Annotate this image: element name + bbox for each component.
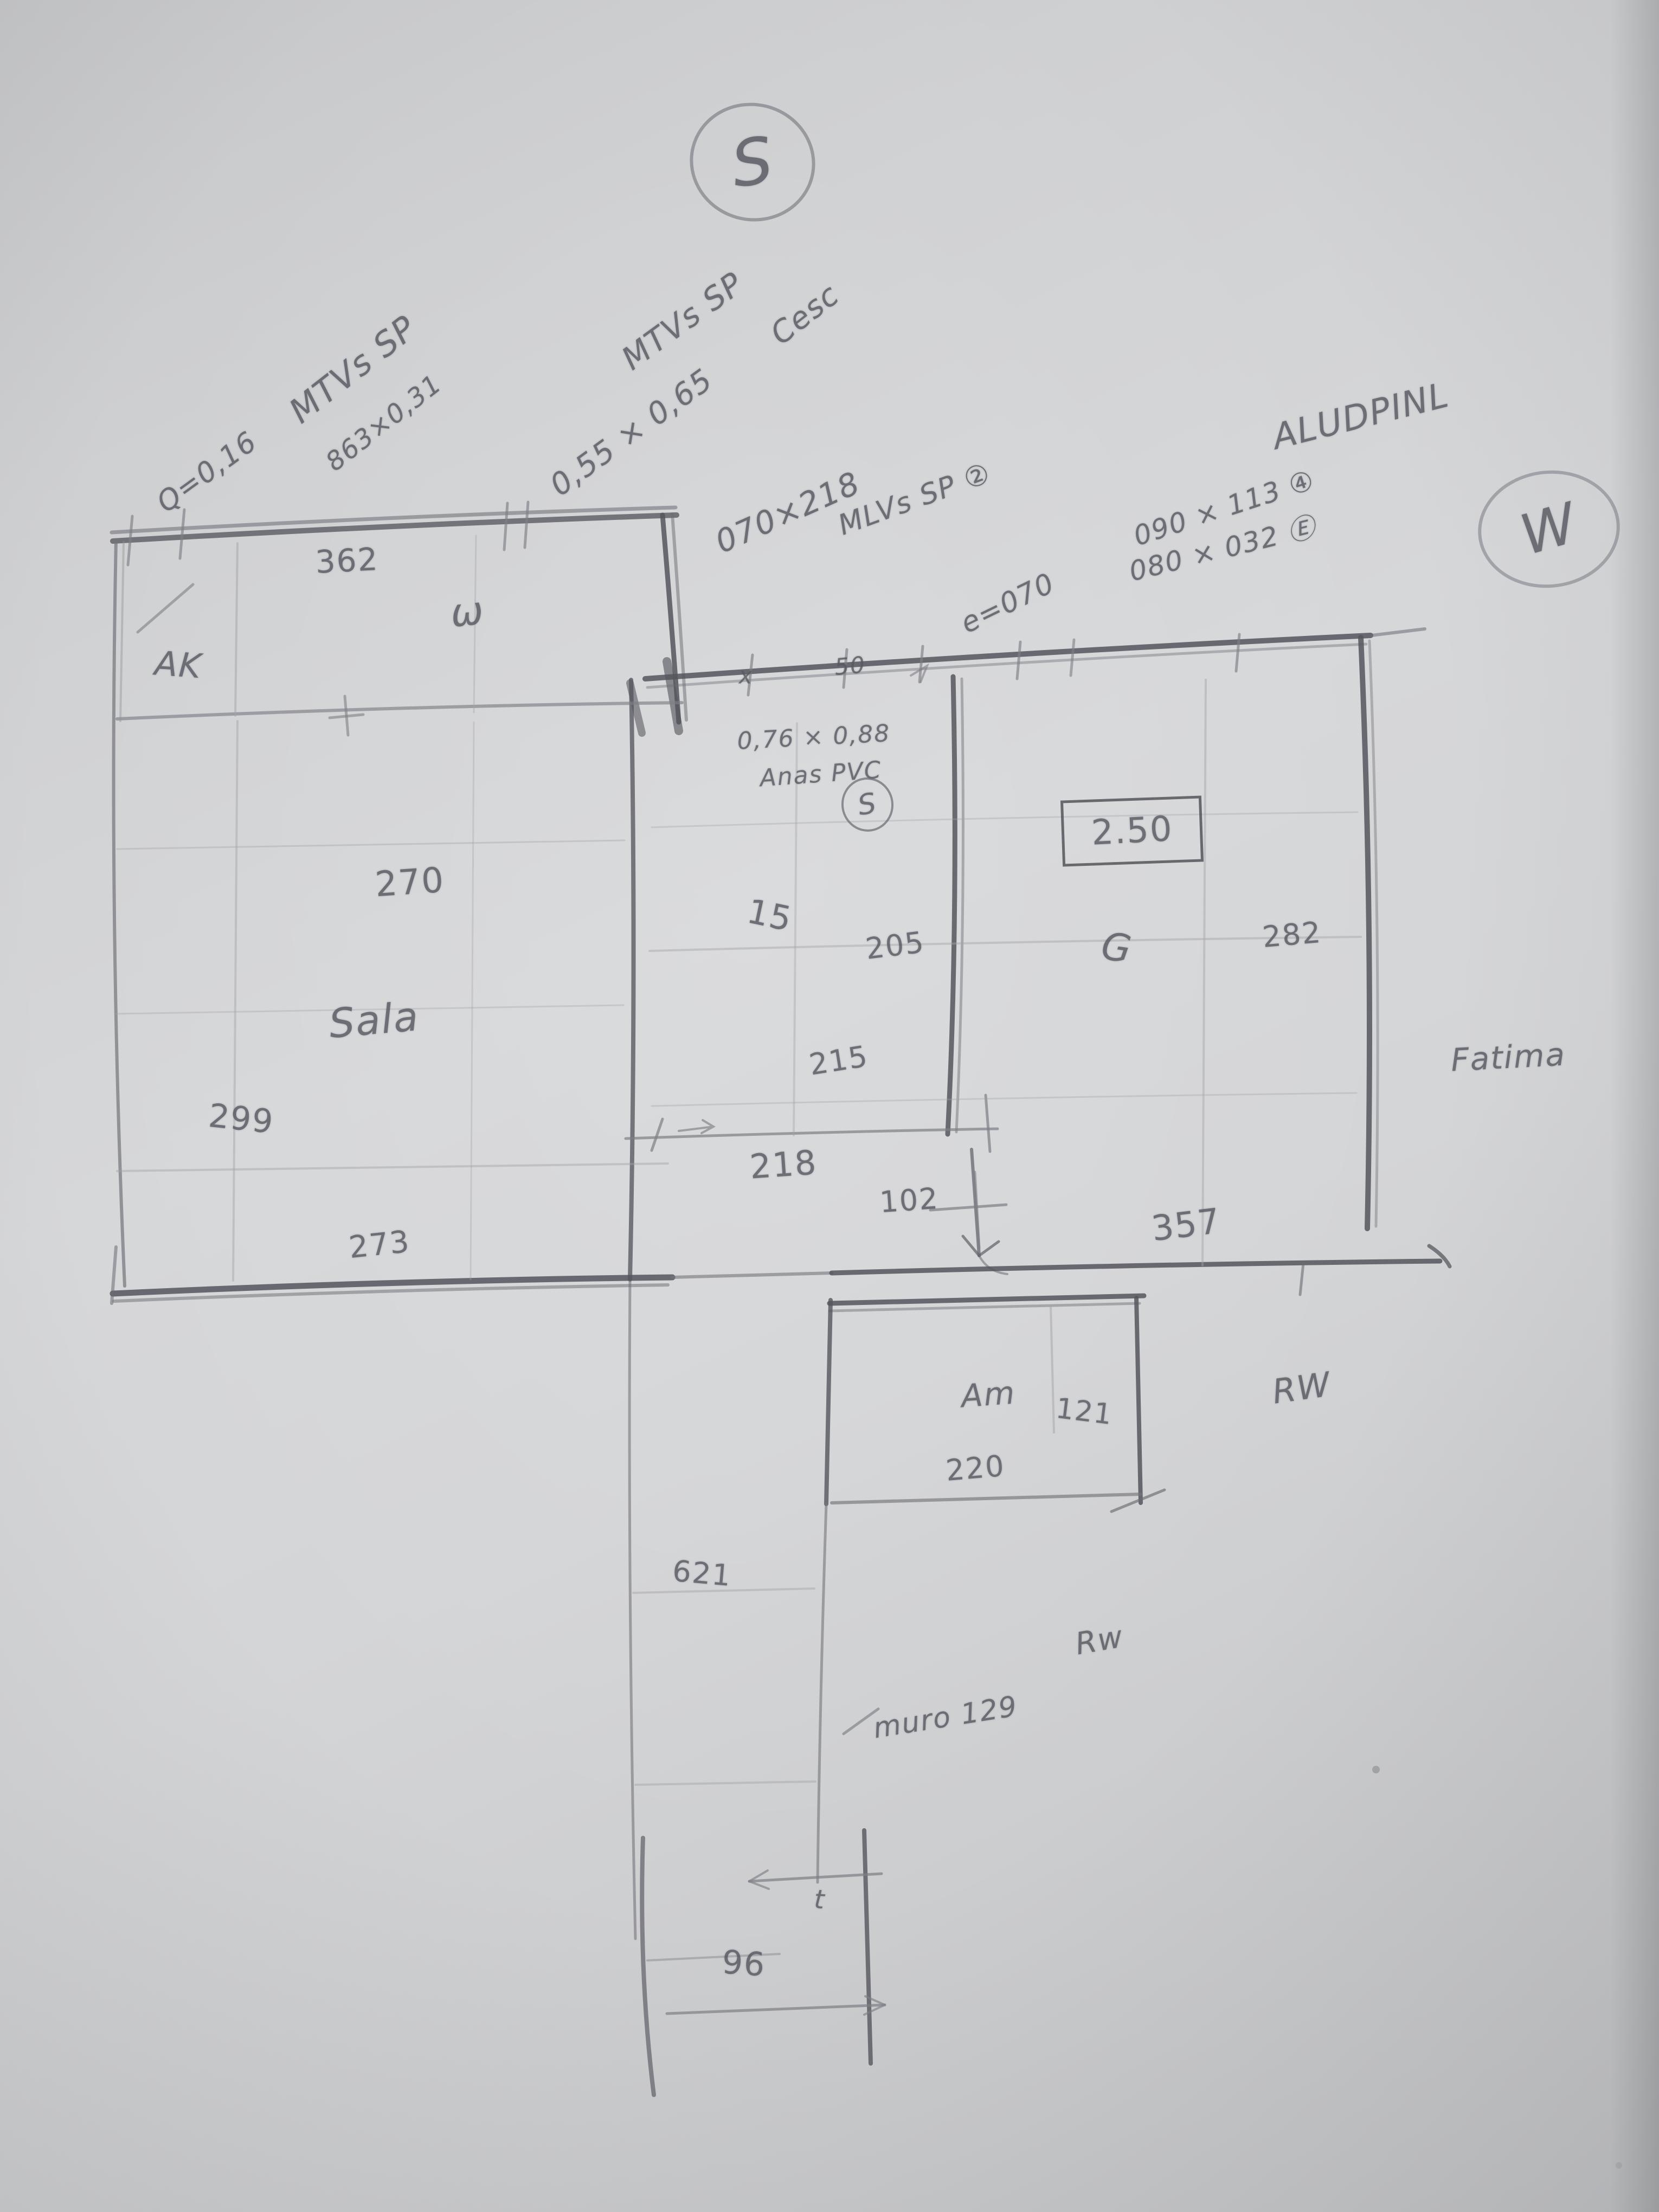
- ceiling-height-value: 2.50: [1090, 809, 1174, 853]
- dim-362: 362: [314, 541, 380, 581]
- tick-label-t: t: [813, 1884, 826, 1915]
- label-ak: AK: [153, 644, 203, 686]
- compass-west-letter: W: [1513, 491, 1585, 568]
- dim-270: 270: [374, 860, 446, 905]
- ceiling-height-box: 2.50: [1060, 796, 1204, 867]
- tick-label-50: 50: [833, 651, 867, 680]
- label-rw-upper: RW: [1270, 1364, 1333, 1411]
- compass-south-letter: S: [726, 122, 778, 202]
- dim-121: 121: [1054, 1392, 1115, 1431]
- dim-102: 102: [878, 1181, 940, 1219]
- photographed-pencil-floorplan-sketch: { "compass": { "south": "S", "west": "W"…: [0, 0, 1659, 2212]
- dim-273: 273: [347, 1224, 411, 1265]
- dim-357: 357: [1149, 1201, 1223, 1249]
- dim-282: 282: [1261, 915, 1323, 954]
- dim-218: 218: [748, 1142, 818, 1186]
- room-name-am: Am: [960, 1374, 1017, 1415]
- dim-96: 96: [721, 1943, 767, 1984]
- dim-299: 299: [207, 1097, 275, 1141]
- dim-205: 205: [864, 925, 927, 966]
- room-name-sala: Sala: [327, 993, 421, 1047]
- dim-220: 220: [944, 1449, 1006, 1488]
- window-mark-omega: ω: [448, 587, 487, 636]
- door-swing-mark-g: G: [1098, 923, 1135, 972]
- label-fatima: Fatima: [1450, 1036, 1566, 1079]
- pvc-circled-letter: S: [856, 787, 880, 822]
- dim-621: 621: [671, 1554, 733, 1593]
- tick-label-x: x: [739, 663, 754, 689]
